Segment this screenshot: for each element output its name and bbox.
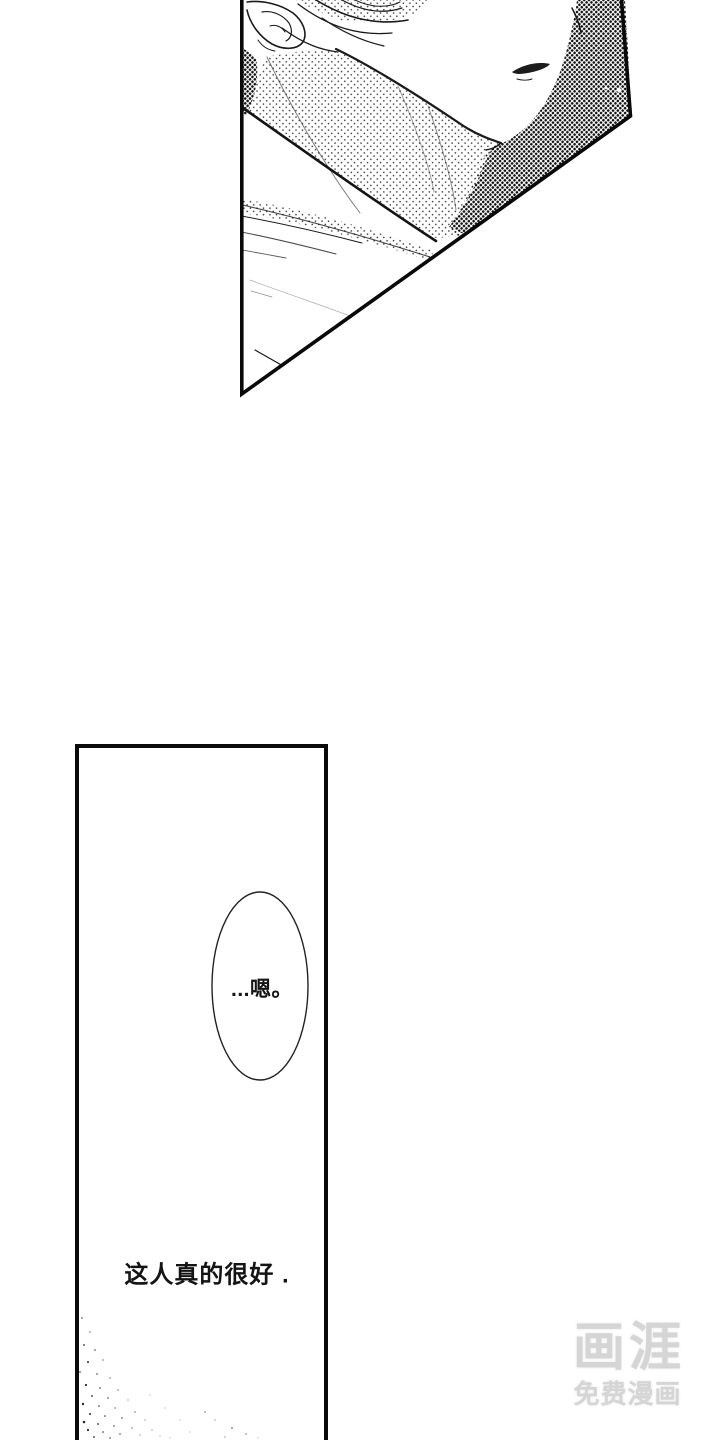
watermark: 画涯 免费漫画: [565, 1318, 689, 1410]
hair-highlight-dot: [617, 88, 621, 92]
speech-bubble-text: ...嗯。: [231, 973, 293, 1003]
watermark-tagline: 免费漫画: [565, 1378, 690, 1410]
manga-page: ...嗯。 这人真的很好 . 画涯 免费漫画: [0, 0, 720, 1440]
portrait-artwork: [235, 0, 632, 396]
narration-text: 这人真的很好 .: [124, 1255, 289, 1290]
page-artwork: [0, 0, 720, 1440]
top-panel: [235, 0, 632, 396]
bottom-panel: [77, 746, 326, 1440]
hair-highlight-dot: [605, 87, 608, 90]
bottom-panel-frame: [77, 746, 326, 1440]
watermark-logo: 画涯: [565, 1318, 693, 1378]
